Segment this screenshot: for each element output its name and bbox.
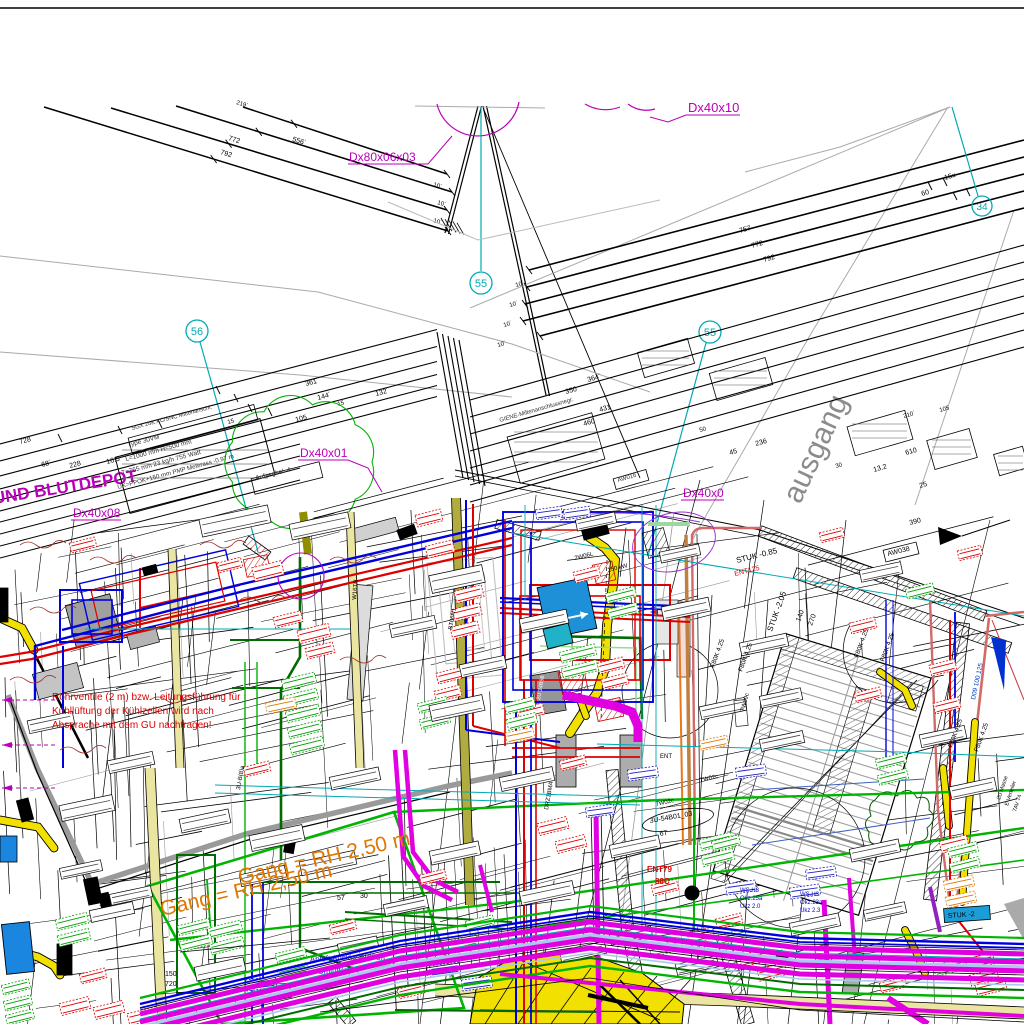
svg-text:ENT: ENT bbox=[660, 754, 672, 760]
svg-text:Okz.23a: Okz.23a bbox=[800, 900, 823, 906]
svg-text:Rohrventile (2 m) bzw. Leitung: Rohrventile (2 m) bzw. Leitungsführung f… bbox=[52, 692, 241, 703]
svg-text:Dx40x01: Dx40x01 bbox=[300, 446, 348, 460]
svg-text:ENT79: ENT79 bbox=[647, 865, 672, 874]
svg-text:Dx80x06x03: Dx80x06x03 bbox=[349, 150, 416, 164]
svg-text:55: 55 bbox=[475, 278, 487, 290]
svg-text:WS.H3: WS.H3 bbox=[800, 892, 820, 898]
svg-text:57: 57 bbox=[337, 895, 345, 902]
svg-text:Dx40x08: Dx40x08 bbox=[73, 506, 121, 520]
svg-text:720: 720 bbox=[165, 981, 177, 988]
svg-text:Ukz 2.3: Ukz 2.3 bbox=[800, 908, 821, 914]
svg-text:Absprache mit dem GU nachtrage: Absprache mit dem GU nachtragen! bbox=[52, 720, 212, 731]
svg-text:30: 30 bbox=[360, 893, 368, 900]
svg-text:67: 67 bbox=[659, 830, 668, 838]
svg-text:150: 150 bbox=[165, 971, 177, 978]
svg-text:Dx40x0: Dx40x0 bbox=[683, 486, 724, 500]
svg-text:Dx40x10: Dx40x10 bbox=[688, 100, 739, 115]
svg-text:Ukz 2.0: Ukz 2.0 bbox=[740, 904, 761, 910]
svg-text:34: 34 bbox=[976, 202, 988, 213]
svg-text:56: 56 bbox=[191, 326, 203, 338]
svg-text:88C: 88C bbox=[655, 877, 670, 886]
svg-text:WS.H3: WS.H3 bbox=[740, 888, 760, 894]
svg-text:Okz.25a: Okz.25a bbox=[740, 896, 763, 902]
svg-text:Kühllüftung der Kühlzellen wir: Kühllüftung der Kühlzellen wird nach bbox=[52, 706, 214, 717]
